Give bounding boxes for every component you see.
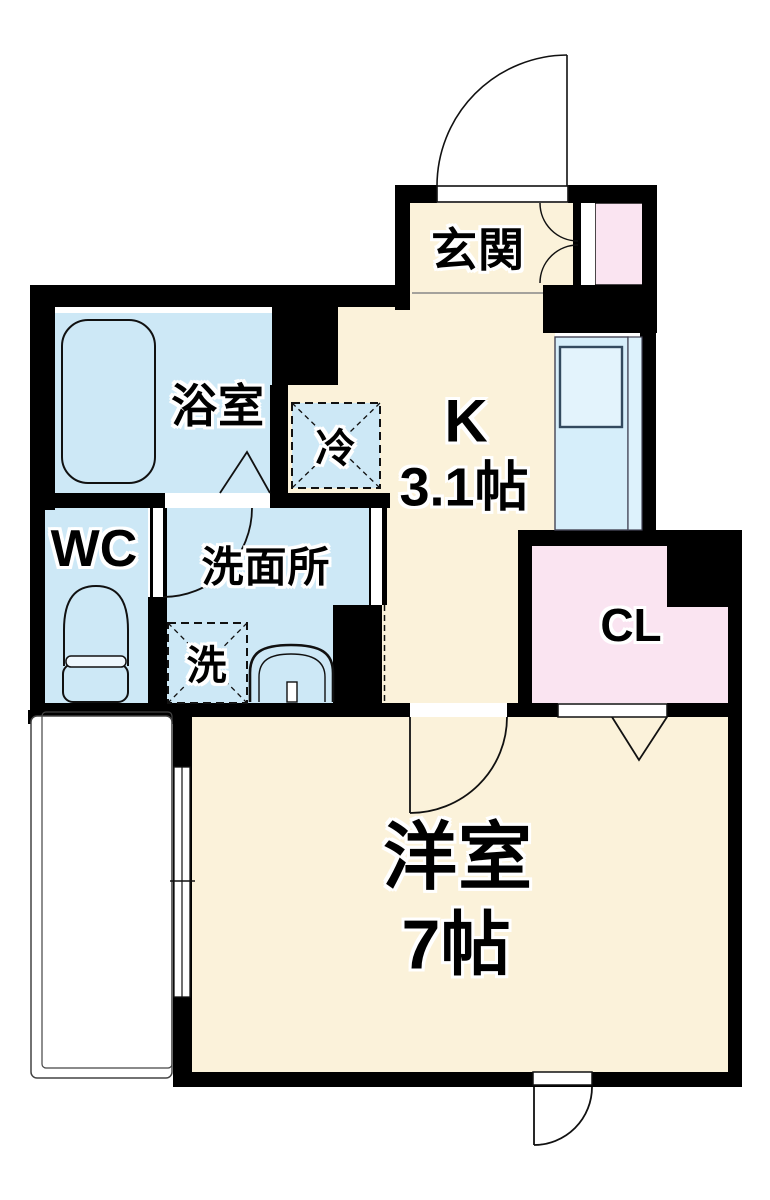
wall [270, 493, 390, 508]
kitchen-sink-icon [560, 347, 622, 427]
wall [270, 385, 288, 493]
washer-label: 洗 [187, 633, 228, 691]
wall [573, 203, 581, 285]
wall [543, 285, 657, 333]
wall [30, 493, 165, 508]
shoe-cabinet-gap [581, 203, 595, 285]
wall [30, 508, 45, 703]
bathroom-label: 浴室 [171, 370, 265, 436]
balcony [31, 712, 172, 1078]
kitchen-floor-sliver [543, 333, 555, 530]
kitchen-floor-upper [338, 307, 543, 387]
wall [173, 1072, 742, 1087]
bottom-door-opening [533, 1072, 592, 1085]
wall [163, 508, 167, 597]
bottom-door-swing-icon[interactable] [534, 1087, 592, 1145]
entry-door-icon[interactable] [437, 55, 568, 202]
wall [518, 546, 532, 717]
refrigerator-label: 冷 [316, 416, 357, 474]
wall [382, 508, 387, 605]
washroom-label: 洗面所 [201, 534, 330, 595]
wall [272, 300, 338, 385]
wc-door[interactable] [153, 508, 163, 597]
western-room-size-label: 7帖 [402, 889, 511, 990]
wc-label: WC [51, 519, 138, 579]
balcony-outer-rail [31, 716, 172, 1078]
closet-floor-right [667, 607, 728, 703]
kitchen-corridor-floor [382, 530, 518, 703]
floorplan: 玄関 浴室 WC 洗面所 冷 洗 K 3.1帖 CL 洋室 7帖 [0, 0, 770, 1200]
kitchen-counter-icon [555, 337, 642, 530]
bathroom-door-opening [165, 493, 270, 508]
wall [30, 285, 55, 510]
closet-label: CL [600, 598, 661, 652]
kitchen-size-label: 3.1帖 [399, 443, 528, 522]
wall [369, 508, 371, 605]
wall [30, 285, 410, 307]
wall [667, 703, 728, 717]
wall [150, 508, 153, 597]
wall [728, 605, 742, 1087]
wall [518, 703, 558, 717]
wall [667, 532, 742, 607]
washroom-sliding-door[interactable] [371, 508, 382, 605]
wall [333, 605, 382, 703]
room-door-opening [410, 703, 507, 717]
genkan-label: 玄関 [431, 214, 525, 280]
wall [148, 597, 167, 703]
shoe-cabinet [595, 203, 643, 285]
closet-door-opening [558, 704, 667, 717]
